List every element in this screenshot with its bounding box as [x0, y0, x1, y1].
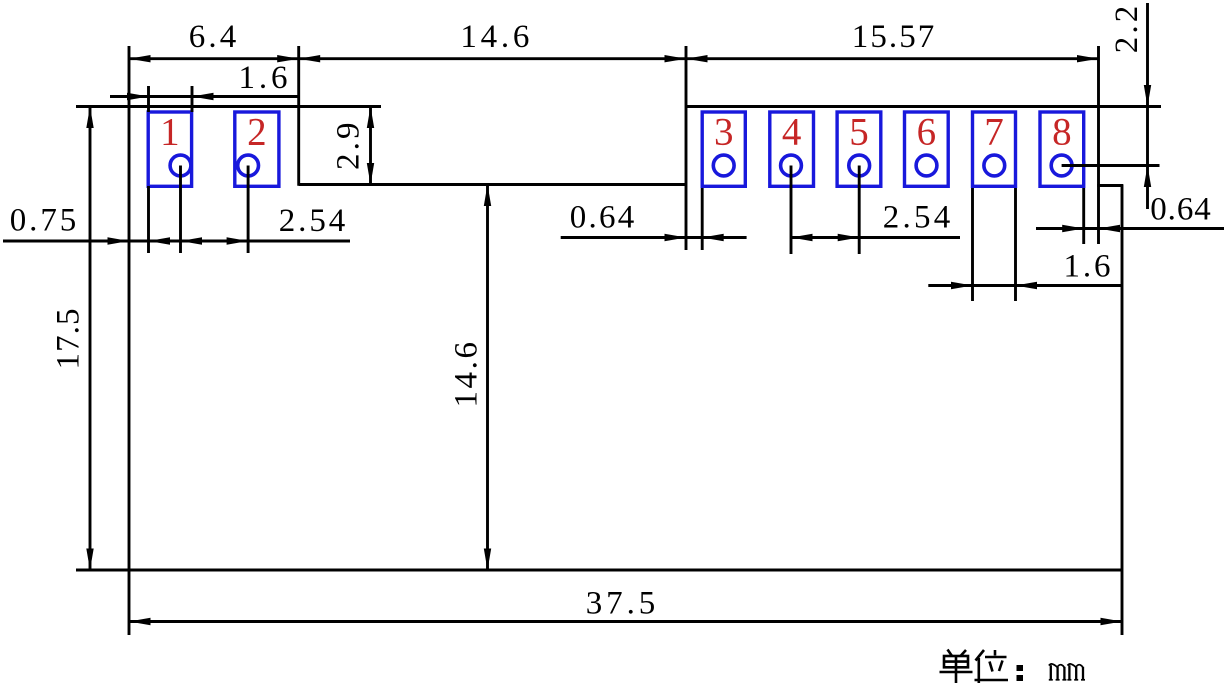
svg-text:6.4: 6.4 — [189, 19, 237, 55]
svg-text:6: 6 — [917, 111, 937, 154]
svg-text:0.64: 0.64 — [570, 200, 635, 236]
svg-text:37.5: 37.5 — [586, 586, 656, 622]
svg-text:1.6: 1.6 — [1064, 249, 1111, 285]
svg-text:14.6: 14.6 — [460, 19, 529, 55]
svg-text:3: 3 — [714, 111, 734, 154]
svg-text:17.5: 17.5 — [50, 309, 86, 370]
svg-text:4: 4 — [782, 111, 802, 154]
svg-text:0.75: 0.75 — [10, 203, 77, 239]
svg-text:2: 2 — [247, 111, 267, 154]
svg-text:2.9: 2.9 — [330, 123, 366, 171]
svg-text:2.2: 2.2 — [1109, 6, 1145, 54]
svg-text:1: 1 — [160, 111, 180, 154]
svg-text:1.6: 1.6 — [239, 60, 288, 96]
svg-text:15.57: 15.57 — [852, 19, 935, 55]
svg-text:2.54: 2.54 — [279, 203, 346, 239]
svg-text:5: 5 — [849, 111, 869, 154]
svg-text:0.64: 0.64 — [1150, 192, 1211, 228]
svg-text:8: 8 — [1052, 111, 1072, 154]
svg-text:7: 7 — [984, 111, 1004, 154]
svg-text:2.54: 2.54 — [883, 200, 951, 236]
svg-text:14.6: 14.6 — [448, 342, 484, 408]
